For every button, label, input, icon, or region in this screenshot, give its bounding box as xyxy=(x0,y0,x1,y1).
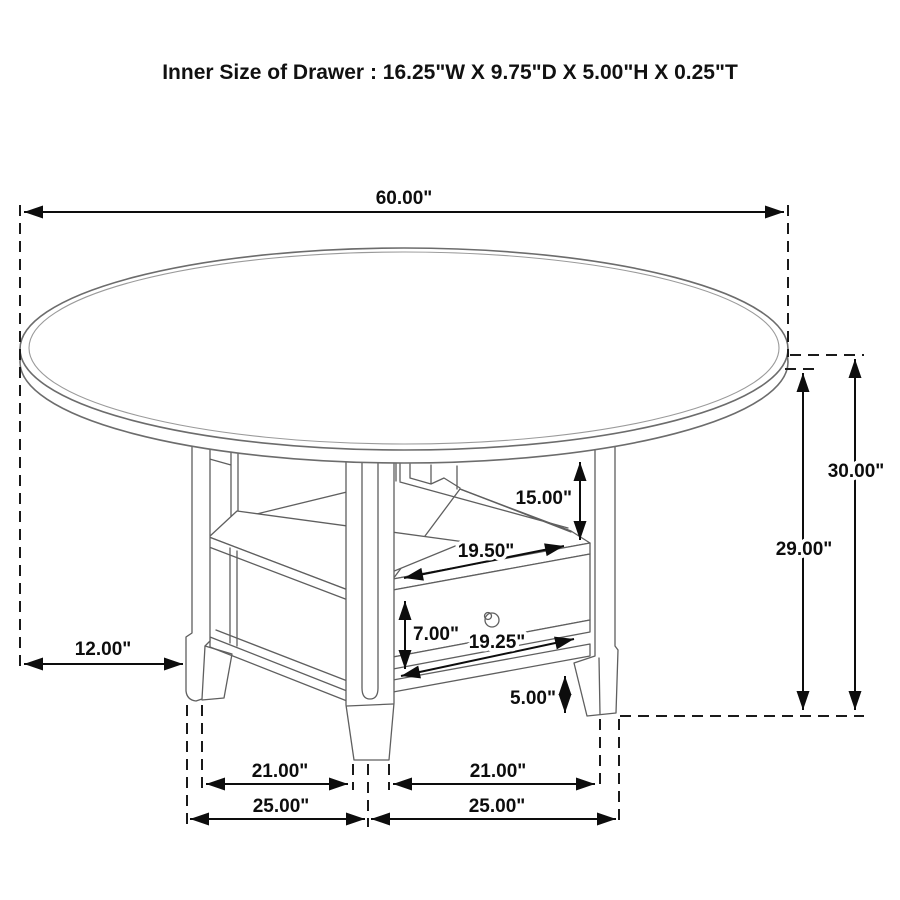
dim-left-outer-span-label: 25.00" xyxy=(253,796,310,817)
back-left-leg-lower xyxy=(230,548,237,646)
top-surface xyxy=(20,248,788,450)
page-title: Inner Size of Drawer : 16.25"W X 9.75"D … xyxy=(162,61,738,84)
dim-shelf-opening-width-label: 19.50" xyxy=(458,541,515,562)
center-leg xyxy=(346,438,394,760)
dim-bottom-clearance: 5.00" xyxy=(510,676,565,713)
dim-left-inner-span-label: 21.00" xyxy=(252,761,309,782)
dim-bottom-clearance-label: 5.00" xyxy=(510,688,556,709)
dim-right-inner-span: 21.00" xyxy=(393,761,595,784)
dim-left-outer-span: 25.00" xyxy=(190,796,365,819)
dim-overall-height: 30.00" xyxy=(828,359,885,710)
dim-right-outer-span-label: 25.00" xyxy=(469,796,526,817)
dim-open-section-height-label: 15.00" xyxy=(515,488,572,509)
table-top xyxy=(20,248,788,463)
dim-top-diameter-label: 60.00" xyxy=(376,188,433,209)
dim-right-outer-span: 25.00" xyxy=(371,796,616,819)
dim-overall-height-label: 30.00" xyxy=(828,461,885,482)
dim-top-diameter: 60.00" xyxy=(24,188,784,212)
back-left-leg xyxy=(206,446,238,524)
dim-drawer-front-width-label: 19.25" xyxy=(469,632,526,653)
dim-drawer-front-height-label: 7.00" xyxy=(413,624,459,645)
dim-top-overhang: 12.00" xyxy=(24,639,183,664)
dim-height-under-top-label: 29.00" xyxy=(776,539,833,560)
dim-right-inner-span-label: 21.00" xyxy=(470,761,527,782)
left-leg xyxy=(186,438,210,701)
diagram-svg: 60.00" 12.00" 30.00" 29.00" 15.00" 19.50… xyxy=(0,0,900,900)
dim-top-overhang-label: 12.00" xyxy=(75,639,132,660)
bottom-shelf-edge-left xyxy=(210,637,347,701)
dimension-diagram: 60.00" 12.00" 30.00" 29.00" 15.00" 19.50… xyxy=(0,0,900,900)
dim-left-inner-span: 21.00" xyxy=(206,761,348,784)
table-base xyxy=(186,438,618,760)
dim-height-under-top: 29.00" xyxy=(776,373,833,710)
